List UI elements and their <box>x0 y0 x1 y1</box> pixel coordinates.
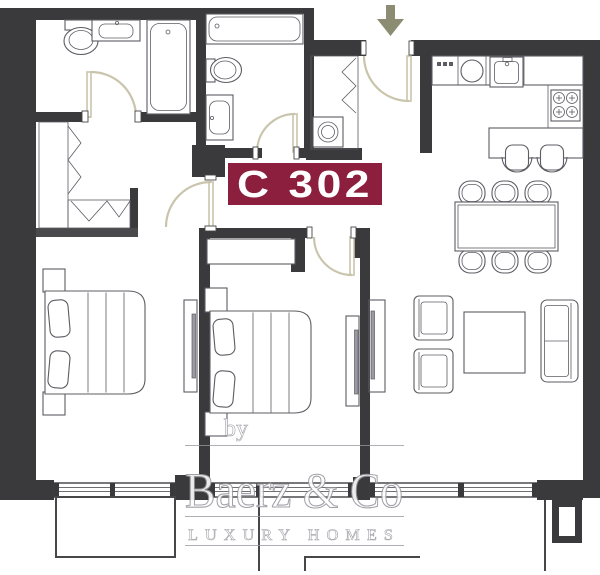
floor-plan-canvas: C 302 by Baerz & Co LUXURY HOMES <box>0 0 600 575</box>
watermark-tagline: LUXURY HOMES <box>188 527 400 544</box>
coffee-table <box>464 312 525 373</box>
pillow-icon <box>47 299 70 338</box>
dining-chair-icon <box>525 181 551 205</box>
nightstand <box>43 392 65 415</box>
nightstand <box>43 269 65 292</box>
bar-stool-icon <box>502 145 532 172</box>
unit-number-label: C 302 <box>237 164 373 206</box>
dining-chair-icon <box>459 181 485 205</box>
floor-plan: C 302 by Baerz & Co LUXURY HOMES <box>0 0 600 575</box>
sink-icon <box>206 95 233 140</box>
dining-table <box>455 202 558 251</box>
dining-chair-icon <box>492 249 518 273</box>
kitchen-island <box>489 128 583 158</box>
dining-area <box>455 181 558 273</box>
pillow-icon <box>212 318 235 356</box>
bar-stool-icon <box>537 145 567 172</box>
bathtub-icon <box>206 14 303 44</box>
watermark-by: by <box>224 416 248 442</box>
double-bed-icon <box>45 291 145 394</box>
sofa-icon <box>541 300 578 382</box>
dining-chair-icon <box>459 249 485 273</box>
armchair-icon <box>414 349 453 393</box>
sink-icon <box>92 20 140 41</box>
wardrobe <box>207 239 295 264</box>
armchair-icon <box>414 296 453 340</box>
unit-badge: C 302 <box>228 163 382 206</box>
pillow-icon <box>47 350 70 389</box>
window-bedroom1 <box>54 483 175 497</box>
kitchen-sink-icon <box>490 57 523 87</box>
nightstand <box>205 288 227 312</box>
dining-chair-icon <box>525 249 551 273</box>
washing-machine-icon <box>313 117 343 147</box>
pillow-icon <box>212 370 235 408</box>
watermark-brand: Baerz & Co <box>185 462 403 518</box>
bathtub-icon <box>147 20 190 114</box>
double-bed-icon <box>210 311 311 413</box>
cooktop-dots-icon <box>437 62 453 66</box>
toilet-icon <box>206 58 242 83</box>
dining-chair-icon <box>492 181 518 205</box>
